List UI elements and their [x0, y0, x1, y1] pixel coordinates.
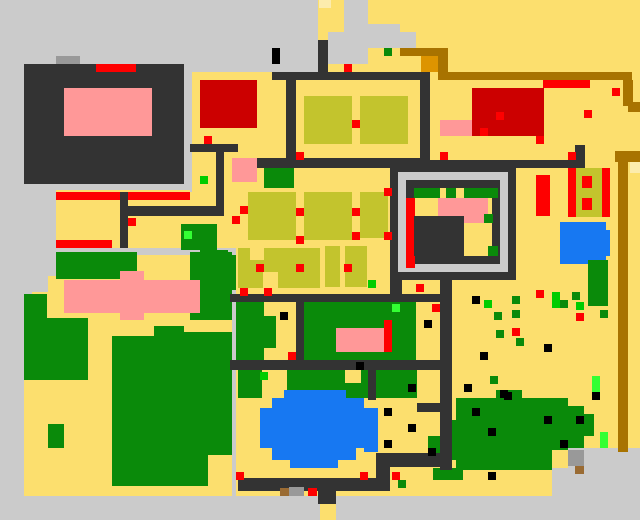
trees-west-b: [236, 302, 264, 360]
black-dot: [500, 390, 508, 398]
road-stub-318: [318, 491, 336, 504]
black-dot: [488, 428, 496, 436]
black-dot: [428, 448, 436, 456]
red-dot: [392, 472, 400, 480]
compound-stub: [390, 276, 402, 296]
red-dot: [536, 290, 544, 298]
trees-west-c: [264, 316, 276, 348]
park-trees-small-rect: [48, 424, 64, 448]
forest-lower: [456, 448, 552, 470]
gray-area-topleft-c: [56, 0, 192, 64]
road-v-120: [120, 192, 128, 248]
red-dot: [236, 472, 244, 480]
road-v-296: [296, 302, 304, 360]
compound-dark-building: [414, 216, 464, 256]
red-chip-south: [308, 488, 317, 496]
brownroad-entry-east: [615, 151, 640, 162]
black-dot: [544, 344, 552, 352]
road-stub-top: [318, 40, 328, 72]
red-dot: [288, 352, 296, 360]
park-yellow-notch: [208, 455, 232, 486]
pink-strip-topright: [440, 120, 472, 136]
gray-step-1: [328, 32, 344, 64]
forest-arm-right: [568, 406, 584, 448]
yard-red-bar: [384, 320, 392, 352]
road-h-206: [128, 206, 224, 216]
red-dot: [568, 152, 576, 160]
park-mansion-pink-top: [120, 271, 144, 280]
compound-green-dot-2: [488, 246, 498, 256]
tree-dot: [490, 376, 498, 384]
black-dot: [384, 408, 392, 416]
red-dot: [496, 112, 504, 120]
gray-area-top-center: [192, 0, 318, 72]
black-dot: [544, 416, 552, 424]
olive-d-notch-2: [263, 272, 278, 288]
redbar-east-3: [602, 168, 610, 217]
court-east: [360, 96, 408, 144]
orange-block: [421, 56, 438, 72]
red-strip-left-2: [128, 192, 190, 200]
red-dot: [256, 264, 264, 272]
green-strip-a: [238, 370, 262, 398]
compound-trees-3: [464, 188, 498, 198]
trees-above-olive: [264, 168, 294, 188]
road-v-216: [216, 152, 224, 208]
red-dot: [384, 188, 392, 196]
bright-green-dot: [260, 372, 268, 380]
neon-green-dot: [592, 376, 600, 392]
redbar-east-1: [536, 175, 550, 216]
black-dot: [592, 392, 600, 400]
tree-dot: [494, 312, 502, 320]
building-darkred-west: [200, 80, 257, 128]
tree-dot: [288, 372, 296, 380]
brown-chip-southeast: [575, 466, 584, 474]
green-strip-b-notch: [345, 370, 361, 383]
red-dot: [296, 264, 304, 272]
park-mansion-pink-bottom: [120, 313, 144, 320]
tree-dot: [600, 310, 608, 318]
road-v-440: [440, 276, 452, 470]
red-dot: [536, 136, 544, 144]
pale-yellow-right: [630, 161, 640, 173]
lake-main: [260, 408, 378, 448]
forest-bump-right: [584, 414, 594, 436]
road-h-453: [376, 453, 452, 467]
red-dot: [480, 128, 488, 136]
tree-dot: [398, 480, 406, 488]
olive-d-notch-1: [250, 248, 264, 260]
red-dot: [344, 64, 352, 72]
olive-east-window-2: [582, 198, 592, 210]
compound-green-dot-1: [484, 214, 493, 223]
road-v-368: [368, 360, 376, 400]
red-dot: [128, 218, 136, 226]
tree-dot: [572, 292, 580, 300]
brownroad-exit-east: [628, 102, 640, 112]
trees-below-pond: [588, 260, 608, 306]
black-dot: [408, 424, 416, 432]
gray-area-bottomright-b: [552, 468, 568, 496]
black-dot: [480, 352, 488, 360]
black-dot: [488, 472, 496, 480]
road-black-stub: [272, 48, 280, 64]
court-west: [304, 96, 352, 144]
trees-west-a: [200, 250, 228, 312]
tree-dot: [512, 310, 520, 318]
olive-block-a: [248, 192, 296, 240]
red-dot: [264, 288, 272, 296]
gray-step-2: [344, 0, 368, 64]
trees-west-bar: [228, 255, 236, 290]
gray-park-step-3: [24, 276, 48, 292]
tree-dot: [384, 48, 392, 56]
road-main-horizontal: [272, 72, 430, 80]
pale-yellow-top: [319, 0, 331, 8]
tree-dot: [496, 330, 504, 338]
red-dot: [296, 152, 304, 160]
brownroad-h-48: [400, 48, 448, 56]
lake-right-bump: [364, 412, 378, 452]
red-dot: [416, 284, 424, 292]
bright-green-dot: [368, 280, 376, 288]
red-dot: [240, 288, 248, 296]
gray-chip-southeast: [568, 450, 584, 466]
red-dot: [204, 136, 212, 144]
black-dot: [280, 312, 288, 320]
gray-step-4: [400, 32, 416, 48]
road-h-360: [230, 360, 452, 370]
red-dot: [612, 88, 620, 96]
olive-east-window-1: [582, 176, 592, 188]
red-dot: [240, 206, 248, 214]
road-stub-575: [575, 145, 585, 161]
red-dot: [432, 304, 440, 312]
red-dot: [584, 110, 592, 118]
gray-step-3: [368, 24, 400, 48]
black-dot: [408, 384, 416, 392]
red-dot: [352, 120, 360, 128]
tree-dot: [512, 296, 520, 304]
olive-block-b: [304, 192, 352, 240]
tree-dot: [516, 338, 524, 346]
road-h-158: [257, 158, 427, 168]
bright-green-dot: [484, 300, 492, 308]
black-dot: [472, 408, 480, 416]
park-mansion-pink-main: [64, 280, 200, 313]
black-dot: [424, 320, 432, 328]
pond-right-bump: [596, 230, 610, 256]
red-dot: [384, 232, 392, 240]
road-h-160: [427, 160, 585, 168]
red-dot: [296, 236, 304, 244]
brownroad-v-618: [618, 162, 628, 452]
lake-bottom: [290, 458, 338, 468]
building-pink-interior: [64, 88, 152, 136]
road-stub-417: [417, 403, 452, 412]
red-strip-left-3: [56, 240, 112, 248]
road-h-144: [190, 144, 238, 152]
redbar-east-2: [568, 168, 576, 217]
building-roof-chip: [56, 56, 80, 64]
tree-dot: [560, 300, 568, 308]
brownroad-h-72: [446, 72, 632, 80]
tree-dot: [440, 472, 448, 480]
red-dot: [344, 264, 352, 272]
red-dot: [512, 328, 520, 336]
road-vertical-east: [420, 80, 430, 168]
olive-block-e: [325, 246, 340, 287]
bright-green-dot: [200, 176, 208, 184]
red-dot: [352, 232, 360, 240]
red-dot: [352, 208, 360, 216]
black-dot: [464, 384, 472, 392]
gray-chip-south: [289, 487, 304, 496]
road-vertical-center: [286, 80, 296, 160]
brown-chip-south: [280, 488, 289, 496]
black-dot: [560, 440, 568, 448]
red-dot: [360, 472, 368, 480]
red-dot: [232, 216, 240, 224]
black-dot: [384, 440, 392, 448]
black-dot: [472, 296, 480, 304]
red-strip-left-1: [56, 192, 120, 200]
neon-green-dot: [184, 231, 192, 239]
black-dot: [356, 362, 364, 370]
neon-green-dot: [600, 432, 608, 448]
red-dot: [440, 152, 448, 160]
red-dot: [296, 208, 304, 216]
yellow-stub-bottom: [320, 504, 336, 520]
bright-green-dot: [576, 302, 584, 310]
neon-green-dot: [392, 304, 400, 312]
compound-trees-1: [414, 188, 440, 198]
red-strip-topright: [543, 80, 590, 88]
pixel-town-map[interactable]: [0, 0, 640, 520]
red-dot: [576, 313, 584, 321]
bright-green-dot: [552, 292, 560, 308]
building-red-strip: [96, 64, 136, 72]
gray-margin-right-of-building: [184, 56, 192, 192]
black-dot: [576, 416, 584, 424]
park-trees-bottom-1: [47, 322, 80, 348]
pink-block-center: [232, 158, 257, 182]
yard-pink-building: [336, 328, 384, 352]
forest-main: [456, 398, 568, 450]
